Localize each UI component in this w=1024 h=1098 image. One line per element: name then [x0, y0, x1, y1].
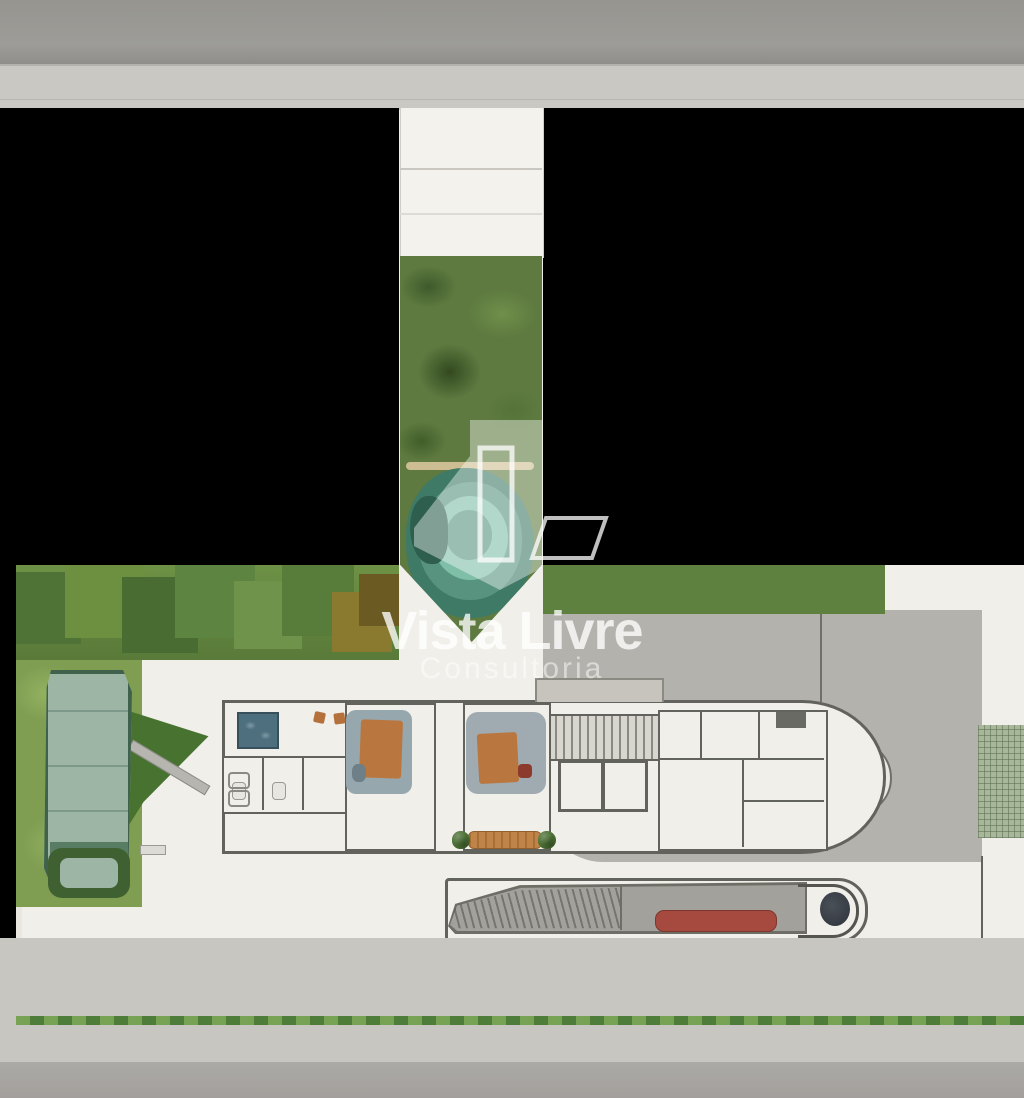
- watermark-logo: [410, 418, 620, 598]
- top-street: [0, 0, 1024, 64]
- entry-loop-core: [820, 892, 850, 926]
- playground-b-slide: [518, 764, 532, 778]
- elevator-2: [602, 760, 648, 812]
- site-plan-canvas: Vista Livre Consultoria: [0, 0, 1024, 1098]
- driveway-right-wall: [981, 856, 983, 940]
- strip-curb-2: [400, 213, 542, 215]
- top-sidewalk-joint: [0, 99, 1024, 100]
- small-bench: [140, 845, 166, 855]
- grill-2: [228, 790, 250, 807]
- entry-bench: [655, 910, 777, 932]
- grill-1: [228, 772, 250, 789]
- fixture-2: [272, 782, 286, 800]
- bench-bush-left: [452, 831, 470, 849]
- watermark-subtitle: Consultoria: [262, 652, 762, 686]
- elevator-1: [558, 760, 604, 812]
- garden-bench: [468, 831, 542, 849]
- bottom-street: [0, 1062, 1024, 1098]
- pool-lane-1: [48, 710, 128, 712]
- shaft: [776, 712, 806, 728]
- stair-core: [545, 714, 662, 761]
- east-wall-2: [758, 710, 760, 760]
- bottom-sidewalk: [0, 938, 1024, 1062]
- masked-strip-left-edge: [0, 565, 16, 997]
- strip-walk: [400, 108, 544, 258]
- playground-b-deck: [477, 732, 520, 784]
- orange-chair-2: [333, 712, 345, 724]
- playground-a-rock: [352, 764, 366, 782]
- planting-strip: [16, 1016, 1024, 1025]
- restroom-divider-1: [262, 756, 264, 810]
- east-wall-1: [700, 710, 702, 760]
- strip-curb-1: [400, 168, 542, 170]
- pool-lane-2: [48, 765, 128, 767]
- top-sidewalk: [0, 64, 1024, 110]
- corner-grove: [860, 565, 1024, 745]
- east-wall-5: [742, 800, 824, 802]
- bench-bush-right: [538, 831, 556, 849]
- ramp-divider: [620, 884, 622, 930]
- east-wall-3: [658, 758, 824, 760]
- spa-tub: [237, 712, 279, 749]
- logo-parallelogram: [532, 518, 606, 558]
- pool-lane-3: [48, 810, 128, 812]
- right-wall-vertical: [820, 612, 822, 702]
- masked-region-left: [0, 108, 399, 565]
- restroom-divider-2: [302, 756, 304, 810]
- orange-chair-1: [313, 711, 326, 724]
- pool-deck-south: [48, 848, 130, 898]
- pool-deck-inner: [60, 858, 118, 888]
- east-wall-4: [742, 758, 744, 847]
- grid-pavers: [978, 725, 1024, 838]
